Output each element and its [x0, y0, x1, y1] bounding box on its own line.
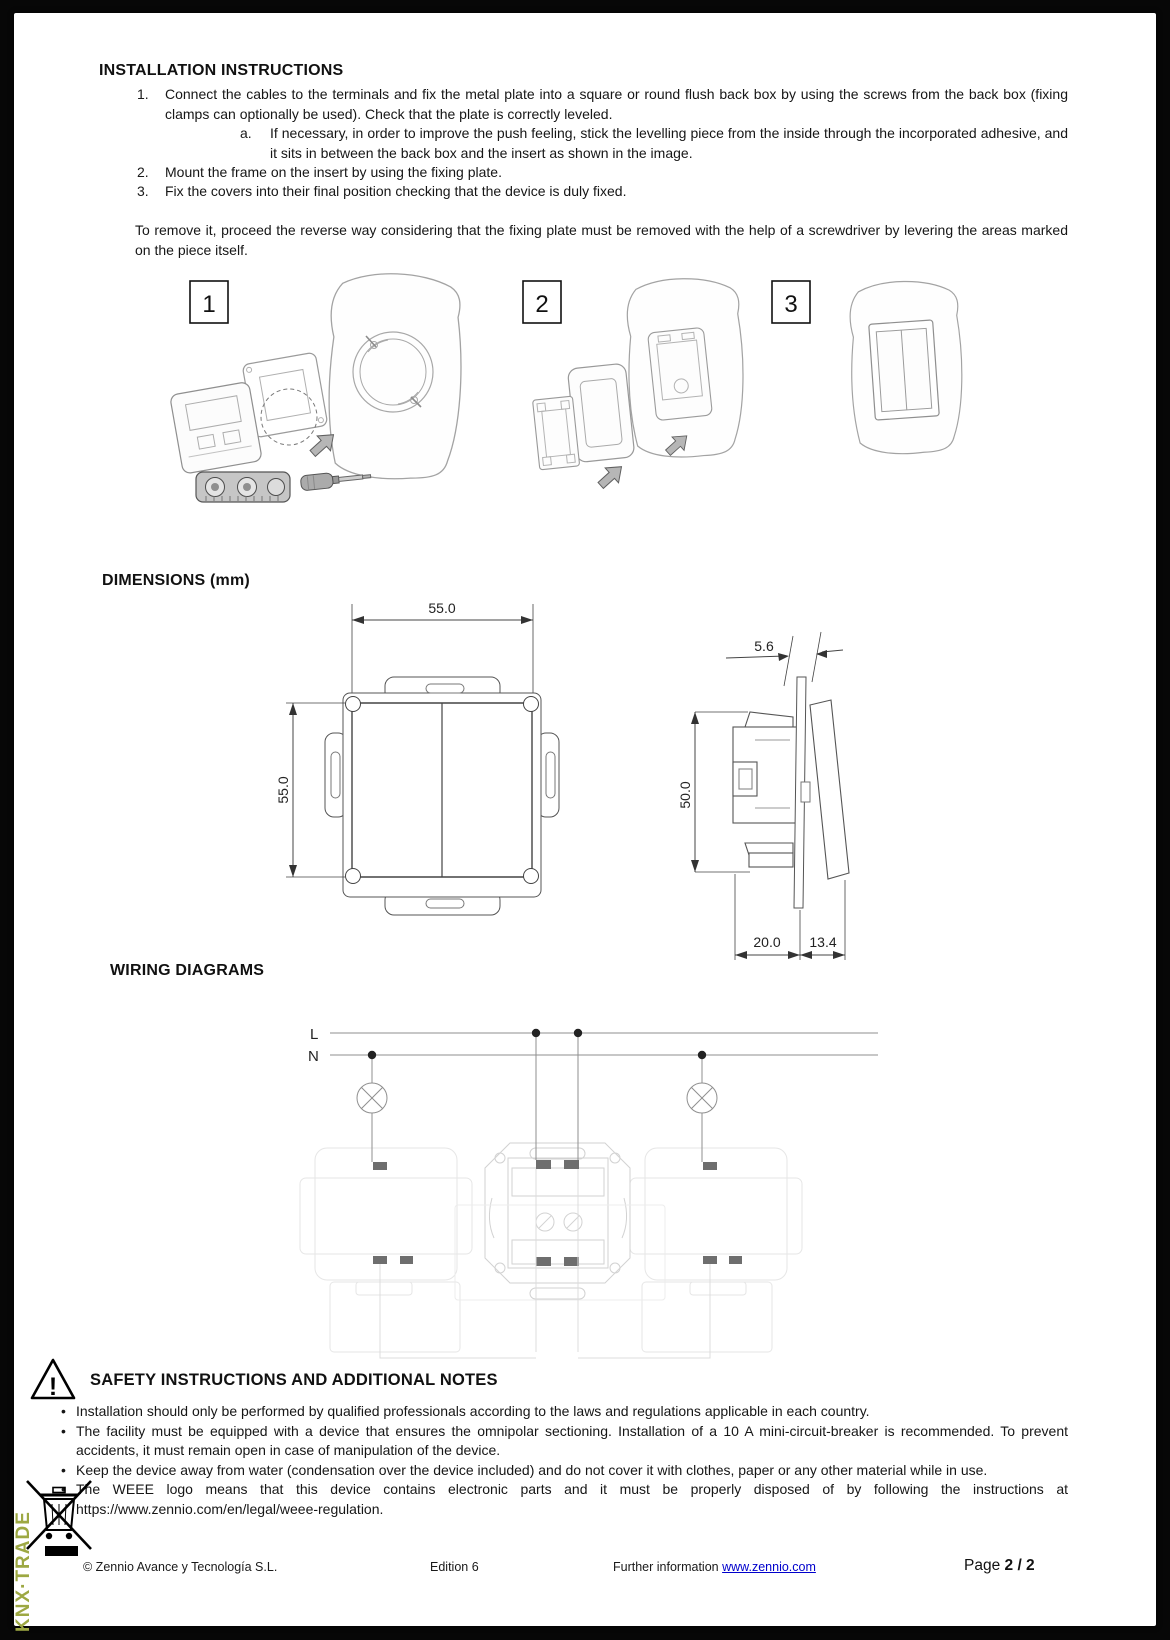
front-view-rockers — [346, 697, 539, 884]
dim-frame-thickness: 5.6 — [754, 638, 774, 654]
dim-arrow — [289, 703, 297, 715]
dim-arrow — [289, 865, 297, 877]
switch-mechanism-back — [455, 1143, 665, 1300]
safety-bullet: The WEEE logo means that this device con… — [76, 1480, 1068, 1519]
figure-3-finished-switch — [869, 320, 940, 420]
figure-1-wall-cover — [323, 271, 466, 483]
line-live-label: L — [310, 1026, 318, 1043]
svg-text:!: ! — [49, 1373, 57, 1401]
installation-title: INSTALLATION INSTRUCTIONS — [99, 62, 343, 80]
dim-arrow — [800, 951, 812, 959]
page-label: Page — [964, 1557, 1000, 1574]
figure-step-2-label: 2 — [523, 281, 561, 323]
level-tool-icon — [196, 472, 290, 502]
dim-front-width: 55.0 — [428, 600, 455, 616]
figure-step-1-label: 1 — [190, 281, 228, 323]
svg-text:1: 1 — [202, 291, 215, 318]
dim-insert-height: 50.0 — [677, 781, 693, 808]
dim-arrow — [352, 616, 364, 624]
dim-front-height: 55.0 — [275, 776, 291, 803]
safety-bullet: The facility must be equipped with a dev… — [76, 1422, 1068, 1461]
footer-further-info: Further information www.zennio.com — [613, 1560, 816, 1574]
footer-further-label: Further information — [613, 1560, 719, 1574]
dim-arrow — [691, 860, 699, 872]
wiring-title: WIRING DIAGRAMS — [110, 962, 264, 980]
dimensions-title: DIMENSIONS (mm) — [102, 572, 250, 590]
terminal-blocks — [373, 1160, 742, 1266]
arrow-icon — [594, 459, 628, 493]
substep-number: a. — [240, 124, 252, 144]
side-view-insert — [733, 712, 797, 867]
figure-step-3-label: 3 — [772, 281, 810, 323]
dimensions-figure: 55.0 55.0 5.6 — [270, 595, 885, 975]
ghost-mechanism-left — [300, 1148, 472, 1352]
dim-arrow — [778, 653, 789, 661]
figure-2-insert-on-wall — [648, 327, 713, 420]
svg-text:3: 3 — [784, 291, 797, 318]
ghost-mechanism-right — [630, 1148, 802, 1352]
figure-1-insert — [170, 381, 263, 474]
safety-title: SAFETY INSTRUCTIONS AND ADDITIONAL NOTES — [90, 1371, 498, 1390]
line-neutral-label: N — [308, 1048, 319, 1065]
step-text: Connect the cables to the terminals and … — [165, 85, 1068, 124]
page-value: 2 / 2 — [1005, 1557, 1035, 1574]
wiring-figure: L N — [295, 1015, 905, 1405]
dim-arrow — [691, 712, 699, 724]
safety-bullet-list: Installation should only be performed by… — [76, 1402, 1068, 1519]
dim-arrow — [788, 951, 800, 959]
safety-bullet: Installation should only be performed by… — [76, 1402, 1068, 1422]
substep-text: If necessary, in order to improve the pu… — [270, 124, 1068, 163]
dim-arrow — [521, 616, 533, 624]
manual-page: { "colors": { "side_text_green": "#9da84… — [0, 0, 1170, 1640]
svg-text:2: 2 — [535, 291, 548, 318]
dim-depth-back: 20.0 — [753, 934, 780, 950]
side-view-cover — [801, 700, 849, 879]
step-number: 1. — [137, 85, 149, 105]
safety-bullet: Keep the device away from water (condens… — [76, 1461, 1068, 1481]
step-number: 3. — [137, 182, 149, 202]
footer-copyright: © Zennio Avance y Tecnología S.L. — [83, 1560, 277, 1574]
step-text: Mount the frame on the insert by using t… — [165, 163, 1068, 183]
installation-figures: 1 2 3 — [130, 258, 1040, 533]
zennio-website-link[interactable]: www.zennio.com — [722, 1560, 816, 1574]
footer-page-number: Page 2 / 2 — [964, 1557, 1035, 1575]
dim-depth-front: 13.4 — [809, 934, 836, 950]
step-text: Fix the covers into their final position… — [165, 182, 1068, 202]
lamp-icon — [687, 1083, 717, 1113]
knx-trade-side-text: KNX·TRADE — [13, 1446, 39, 1632]
warning-triangle-icon: ! — [26, 1356, 80, 1404]
removal-note: To remove it, proceed the reverse way co… — [135, 221, 1068, 260]
weee-bar — [45, 1546, 78, 1556]
figure-2-fixing-clamp — [533, 396, 580, 470]
dim-arrow — [833, 951, 845, 959]
lamp-icon — [357, 1083, 387, 1113]
step-number: 2. — [137, 163, 149, 183]
footer-edition: Edition 6 — [430, 1560, 479, 1574]
dim-arrow — [735, 951, 747, 959]
